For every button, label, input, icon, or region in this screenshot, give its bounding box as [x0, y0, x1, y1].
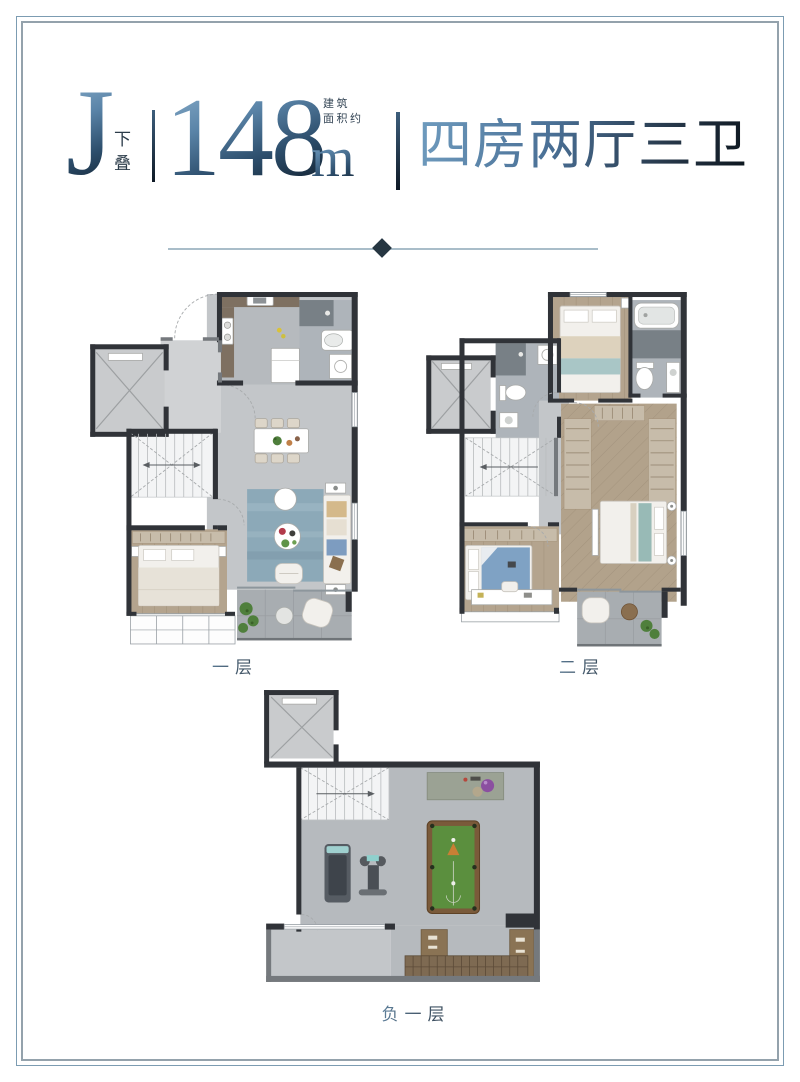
divider-diamond-icon — [372, 238, 392, 258]
second-floor-plan — [423, 292, 687, 650]
layout-description: 四房两厅三卫 — [418, 118, 748, 172]
header: J 下叠 148 建筑 面积约 m2 四房两厅三卫 — [66, 84, 756, 204]
unit-type-vertical-label: 下叠 — [112, 130, 129, 178]
floor-areas — [269, 695, 536, 978]
area-value: 148 — [165, 82, 324, 194]
second-floor-label: 二层 — [529, 653, 635, 678]
area-unit-base: m — [311, 127, 355, 189]
unit-letter: J — [66, 71, 114, 195]
first-floor-label: 一层 — [182, 653, 288, 678]
area-unit-exponent: 2 — [356, 104, 371, 137]
treadmill — [325, 844, 351, 902]
console-table — [427, 773, 504, 800]
basement-floor-label: 负一层 — [358, 1000, 474, 1025]
basement-floor-plan — [254, 682, 546, 988]
area-unit: m2 — [311, 130, 370, 186]
header-divider-bar-left — [152, 110, 155, 182]
bedroom-top — [560, 294, 630, 400]
billiard-table — [427, 821, 479, 914]
area-note-line1: 建筑 — [323, 98, 350, 110]
floorplan-poster: { "header": { "unit_letter": "J", "unit_… — [0, 0, 800, 1082]
first-floor-plan — [86, 292, 370, 650]
master-bed — [592, 501, 676, 565]
living-room — [247, 483, 351, 595]
header-divider-bar-right — [396, 112, 400, 190]
